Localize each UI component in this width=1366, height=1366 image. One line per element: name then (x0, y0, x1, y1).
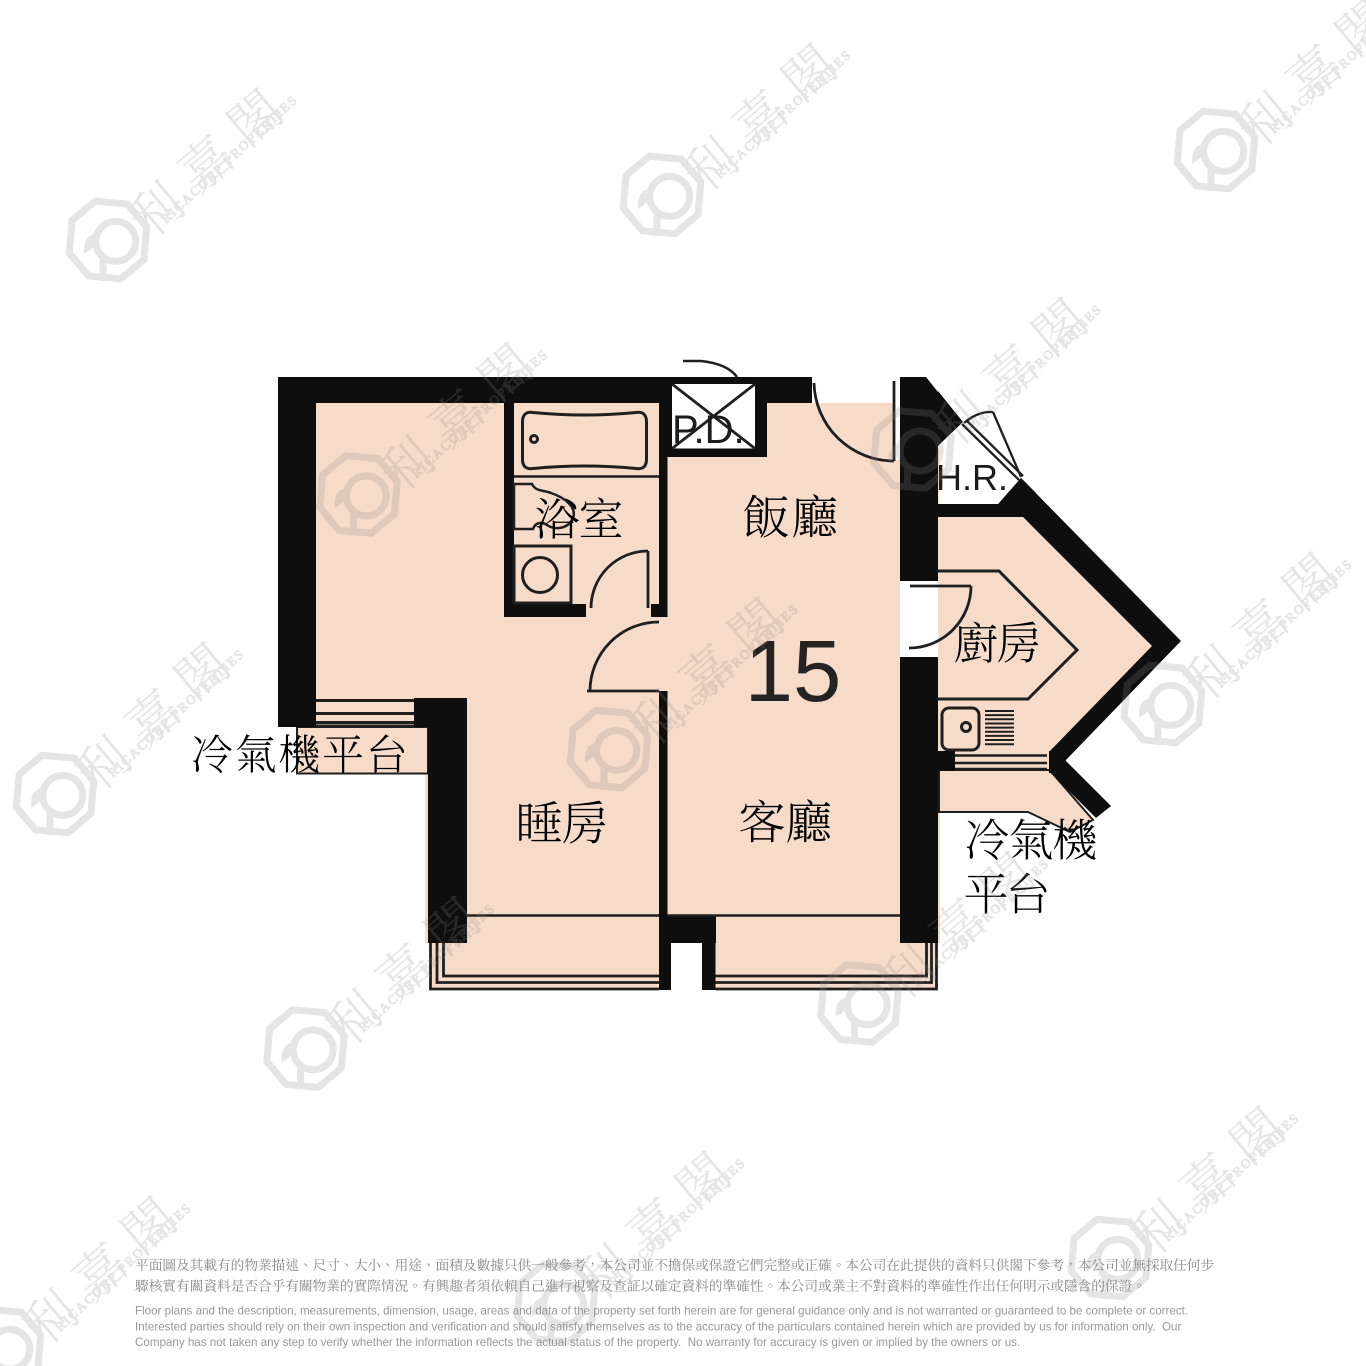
svg-text:Floor plans and the descriptio: Floor plans and the description, measure… (135, 1305, 1188, 1318)
svg-text:P.D.: P.D. (672, 408, 745, 452)
svg-text:Interested parties should rely: Interested parties should rely on their … (135, 1320, 1181, 1333)
